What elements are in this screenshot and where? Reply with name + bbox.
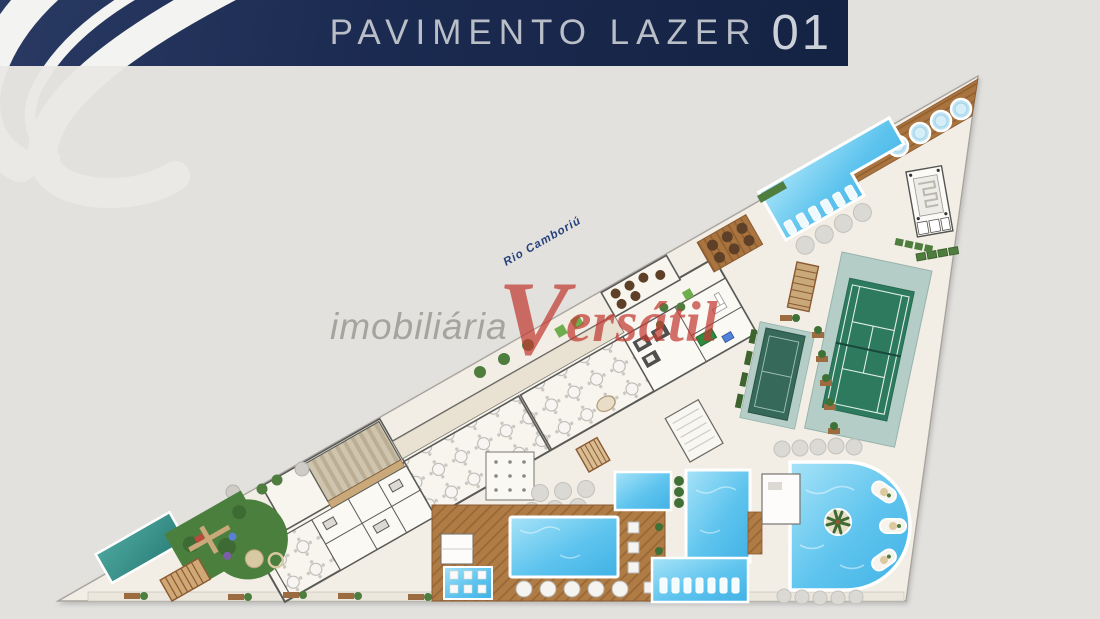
floor-plan-canvas: Rio Camboriú: [0, 0, 1100, 619]
bar-counter: [768, 482, 782, 490]
garden-pavilion: [486, 452, 534, 500]
wood-pier: [748, 512, 762, 554]
river-label: Rio Camboriú: [502, 215, 584, 269]
swim-up-bar-pool: [444, 567, 492, 599]
pool-wet-deck: [652, 558, 748, 602]
page-title: PAVIMENTO LAZER: [330, 13, 758, 53]
deck-pool-complex: [432, 505, 665, 601]
pool-bar: [762, 474, 800, 524]
pool-small: [615, 472, 671, 510]
floor-plan-page: PAVIMENTO LAZER 01 imobiliária V ersátil: [0, 0, 1100, 619]
pool-tall: [686, 470, 750, 562]
hedge-pools: [674, 476, 684, 508]
page-title-number: 01: [771, 5, 832, 61]
deck-pool: [510, 517, 618, 577]
palm-island: [825, 509, 851, 535]
header-banner: PAVIMENTO LAZER 01: [0, 0, 848, 66]
